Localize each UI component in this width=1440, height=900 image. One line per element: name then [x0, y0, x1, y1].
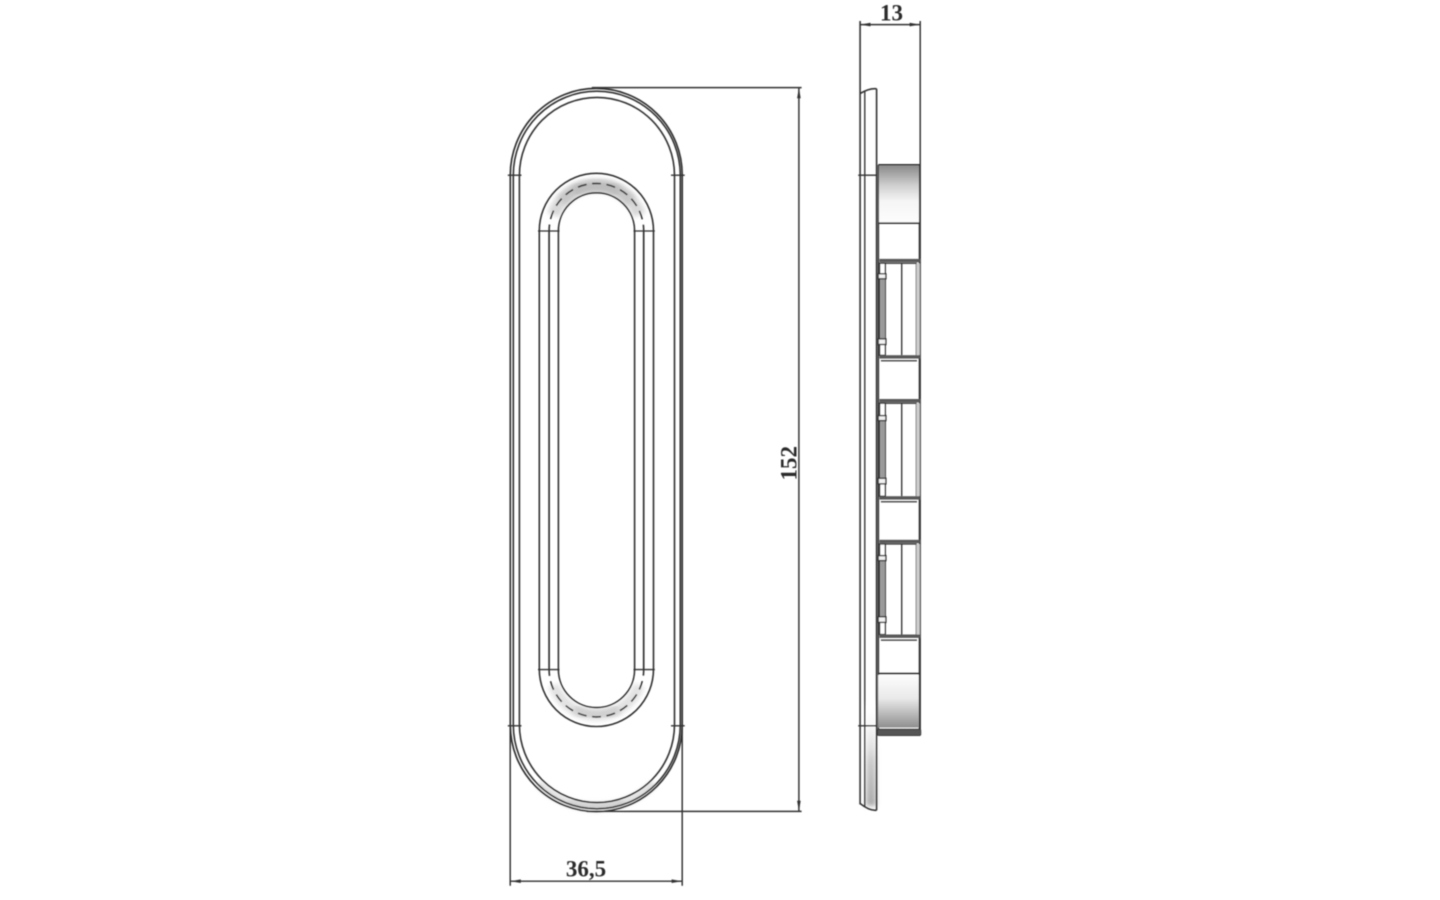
svg-text:13: 13 [880, 1, 903, 26]
svg-text:36,5: 36,5 [566, 857, 606, 882]
svg-text:152: 152 [776, 446, 801, 481]
